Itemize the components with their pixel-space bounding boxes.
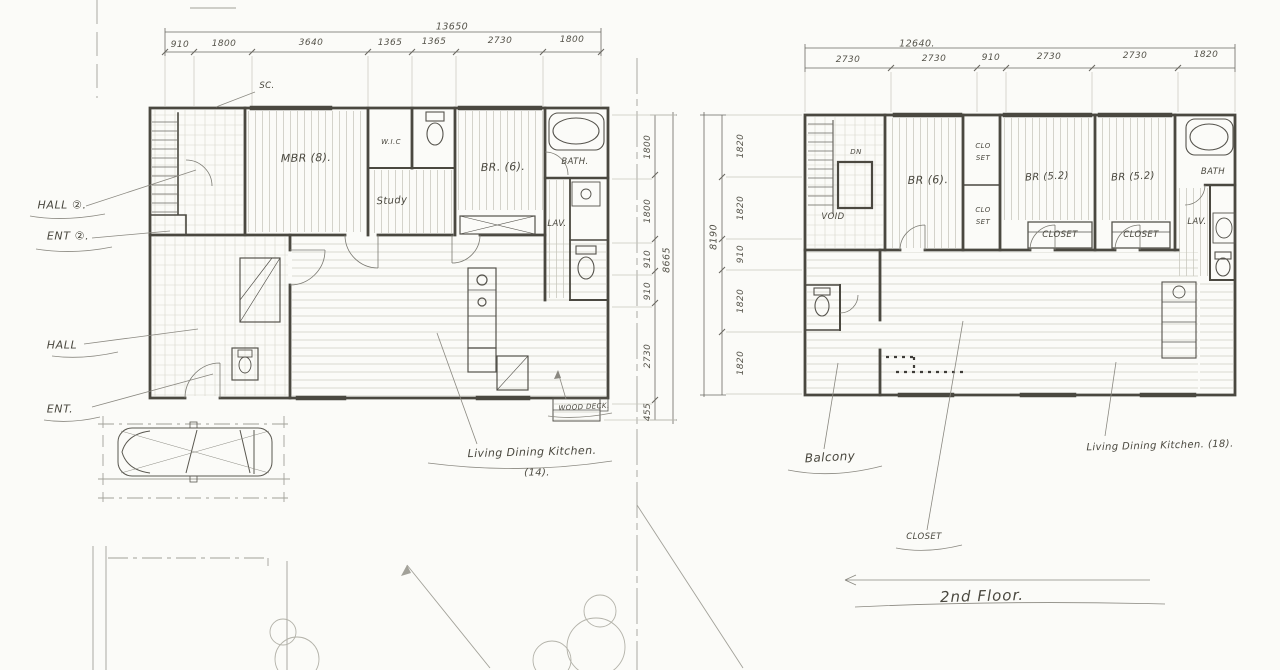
plan1-dim-seg: 910 xyxy=(171,40,189,50)
plan2-label-balcony: Balcony xyxy=(804,449,855,466)
plan1-label-bath: BATH. xyxy=(561,157,588,167)
tree-circles xyxy=(270,595,625,670)
plan1-dim-seg: 3640 xyxy=(299,38,324,48)
plan1-dim-total-width: 13650 xyxy=(436,22,468,33)
plan1-dim-seg: 1365 xyxy=(378,38,403,48)
plan1-label-hall: HALL xyxy=(47,339,77,352)
plan2-dim-seg: 910 xyxy=(982,53,1000,63)
plan1-dim-seg: 1800 xyxy=(643,135,653,160)
plan1-dim-seg: 455 xyxy=(643,403,653,421)
plan1-label-ent: ENT. xyxy=(47,403,74,416)
plan1-label-ent2: ENT ②. xyxy=(47,230,89,243)
plan1-label-br: BR. (6). xyxy=(481,160,526,174)
plan1-dim-seg: 2730 xyxy=(643,344,653,369)
plan1-label-mbr: MBR (8). xyxy=(281,151,332,165)
plan2-label-br52b: BR (5.2) xyxy=(1111,170,1155,183)
floor-plan-sketch-sheet: 13650 910 1800 3640 1365 1365 2730 1800 … xyxy=(0,0,1280,670)
plan2-dim-seg: 2730 xyxy=(1037,52,1062,62)
plan2-floor-title: 2nd Floor. xyxy=(940,586,1025,606)
plan2-label-closet-small-1: CLO xyxy=(975,142,990,150)
plan2-dim-seg: 910 xyxy=(736,245,746,263)
plan1-dim-seg: 1800 xyxy=(212,39,237,49)
plan1-label-lav: LAV. xyxy=(547,219,566,229)
plan2-dim-seg: 1820 xyxy=(736,196,746,221)
plan2-dim-seg: 2730 xyxy=(922,54,947,64)
plan2-dim-seg: 2730 xyxy=(1123,51,1148,61)
plan2-dim-seg: 1820 xyxy=(1194,50,1219,60)
plan2-label-closet-small-2b: SET xyxy=(976,218,990,226)
plan2-label-closet-small-2: CLO xyxy=(975,206,990,214)
plan2-label-br52a: BR (5.2) xyxy=(1025,170,1069,183)
plan2-label-closet-b: CLOSET xyxy=(1123,230,1158,240)
plan1-dim-seg: 1365 xyxy=(422,37,447,47)
plan2-dim-total-width: 12640. xyxy=(899,39,935,50)
plan1-dim-seg: 910 xyxy=(643,250,653,268)
plan2-label-dn: DN xyxy=(850,148,861,156)
plan1-label-study: Study xyxy=(376,195,407,208)
plan2-label-bath: BATH xyxy=(1201,167,1225,177)
plan1-label-hall2: HALL ②. xyxy=(37,199,86,212)
plan2-dim-seg: 1820 xyxy=(736,351,746,376)
plan2-dim-total-height: 8190 xyxy=(709,224,720,250)
plan1-dim-seg: 2730 xyxy=(488,36,513,46)
plan2-label-br6: BR (6). xyxy=(908,173,949,187)
plan2-floor-hatching xyxy=(807,117,1233,393)
plan1-dim-seg: 1800 xyxy=(560,35,585,45)
plan1-dim-total-height: 8665 xyxy=(662,247,673,273)
plan2-label-lav: LAV. xyxy=(1187,217,1206,227)
plan2-label-closet-note: CLOSET xyxy=(906,532,941,542)
plan2-label-void: VOID xyxy=(821,212,844,222)
plan1-label-ldk-area: (14). xyxy=(524,468,550,479)
plan2-label-closet-a: CLOSET xyxy=(1042,230,1077,240)
plan2-dim-seg: 2730 xyxy=(836,55,861,65)
plan2-dim-seg: 1820 xyxy=(736,289,746,314)
plan1-dim-seg: 910 xyxy=(643,282,653,300)
plan1-label-wic: W.I.C xyxy=(381,138,401,146)
plan1-dim-seg: 1800 xyxy=(643,199,653,224)
plan2-dim-seg: 1820 xyxy=(736,134,746,159)
sketch-drawing xyxy=(0,0,1280,670)
car-top-view xyxy=(118,422,272,482)
plan1-label-sc: SC. xyxy=(259,81,274,91)
plan2-label-closet-small-1b: SET xyxy=(976,154,990,162)
